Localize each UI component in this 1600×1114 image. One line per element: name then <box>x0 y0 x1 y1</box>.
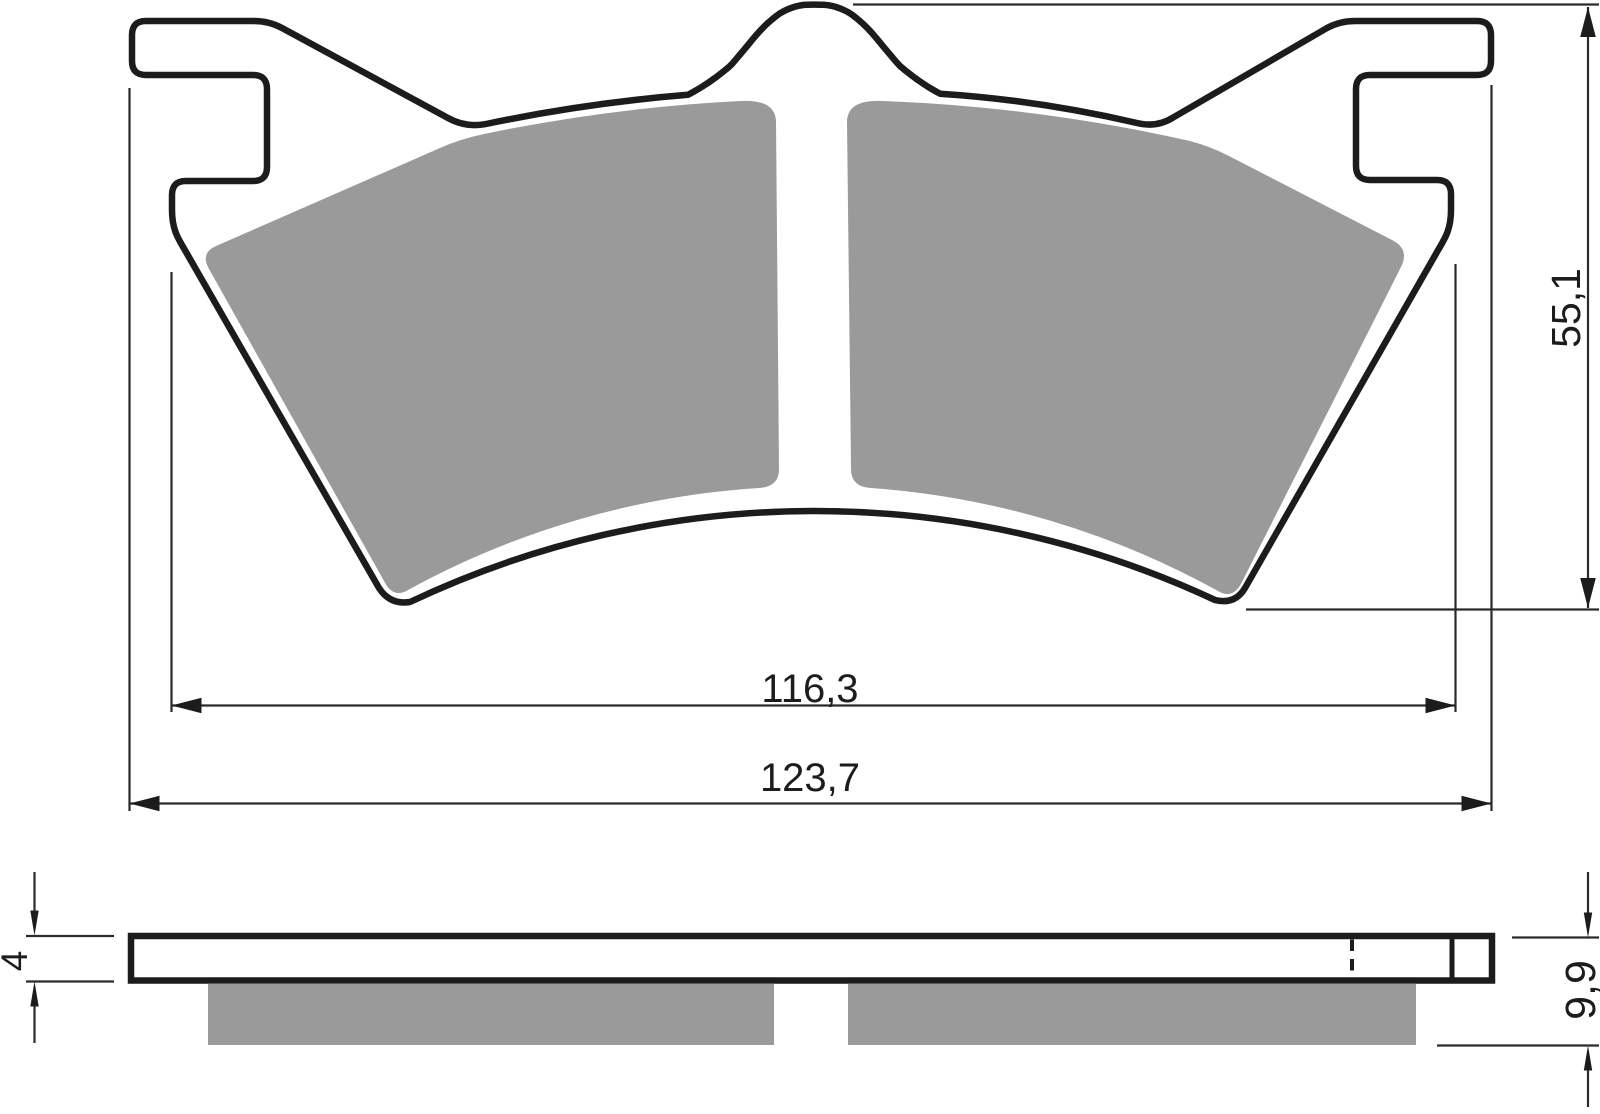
svg-text:9,9: 9,9 <box>1557 960 1600 1020</box>
svg-text:123,7: 123,7 <box>760 756 860 800</box>
svg-text:116,3: 116,3 <box>761 667 858 711</box>
svg-text:55,1: 55,1 <box>1543 268 1589 348</box>
svg-text:4: 4 <box>0 951 35 972</box>
